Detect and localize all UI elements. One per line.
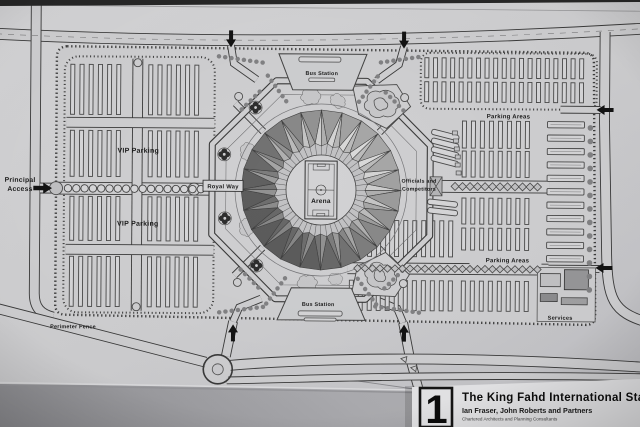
parking-bay <box>425 82 429 102</box>
parking-bay <box>476 82 480 102</box>
parking-bay <box>97 256 101 306</box>
parking-bay <box>511 58 515 78</box>
parking-bay <box>519 82 523 102</box>
avenue-tree <box>131 185 138 192</box>
parking-bay <box>193 257 197 307</box>
parking-bay <box>537 59 541 79</box>
parking-bay <box>519 58 523 78</box>
title-block: 1 The King Fahd International Stadium Ia… <box>405 379 640 427</box>
parking-bay <box>506 281 510 311</box>
parking-bay <box>489 228 493 250</box>
parking-bay <box>536 83 540 103</box>
parking-bay <box>97 196 101 240</box>
parking-bay <box>156 257 160 307</box>
parking-bay <box>459 58 463 78</box>
parking-bay <box>194 131 198 177</box>
parking-bay <box>494 58 498 78</box>
parking-bay <box>115 257 119 307</box>
parking-bay <box>89 64 93 114</box>
parking-bay <box>528 82 532 102</box>
parking-bay <box>433 82 437 102</box>
parking-bay <box>449 221 453 257</box>
parking-bay <box>480 121 484 148</box>
parking-bay <box>439 281 443 311</box>
parking-bay <box>107 65 111 115</box>
parking-bay <box>106 197 110 241</box>
avenue-tree <box>156 185 163 192</box>
parking-bay <box>525 228 529 250</box>
parking-bay <box>184 197 188 241</box>
parking-bay <box>194 197 198 241</box>
avenue-tree <box>172 185 179 192</box>
parking-bay <box>497 281 501 311</box>
avenue-tree <box>147 185 154 192</box>
bus-station-label-bottom: Bus Station <box>302 302 335 308</box>
parking-bay <box>157 197 161 241</box>
parking-bay <box>476 58 480 78</box>
parking-bay <box>524 281 528 311</box>
parking-bay <box>88 256 92 306</box>
avenue-tree <box>106 185 113 192</box>
parking-bay <box>498 151 502 177</box>
parking-bay <box>489 151 493 177</box>
parking-bay <box>462 121 466 148</box>
consultants-line: Chartered Architects and Planning Consul… <box>462 417 558 422</box>
avenue-tree <box>189 185 196 192</box>
parking-bay <box>442 58 446 78</box>
avenue-tree <box>180 185 187 192</box>
parking-bay <box>528 58 532 78</box>
parking-bay <box>440 221 444 257</box>
parking-bay <box>502 58 506 78</box>
parking-bay <box>480 198 484 224</box>
vip-parking-label-lower: VIP Parking <box>117 221 159 228</box>
parking-bay <box>525 121 529 148</box>
parking-bay <box>516 151 520 177</box>
road-surface <box>66 122 214 123</box>
parking-bay <box>471 121 475 148</box>
parking-bay <box>489 121 493 148</box>
photo-of-site-plan-board: Principal Access VIP Parking VIP Parking… <box>0 0 640 427</box>
parking-bay <box>470 281 474 311</box>
parking-bay <box>175 257 179 307</box>
service-building <box>561 298 587 305</box>
parking-bay <box>433 58 437 78</box>
officials-label-line2: Competitors <box>402 187 436 193</box>
project-title: The King Fahd International Stadium <box>462 392 640 404</box>
parking-bay <box>485 82 489 102</box>
fountain-icon <box>250 259 263 272</box>
fountain-icon <box>218 212 231 225</box>
parking-bay <box>107 131 111 177</box>
parking-bay <box>468 58 472 78</box>
parking-bay <box>554 83 558 103</box>
parking-bay <box>166 197 170 241</box>
site-plan-drawing: Principal Access VIP Parking VIP Parking… <box>0 0 640 427</box>
parking-bay <box>502 82 506 102</box>
parking-bay <box>148 197 152 241</box>
avenue-tree <box>122 185 129 192</box>
parking-bay <box>471 151 475 177</box>
service-building <box>564 270 588 290</box>
parking-bay <box>571 83 575 103</box>
parking-bay <box>461 281 465 311</box>
principal-access-label-line2: Access <box>7 186 32 193</box>
parking-bay <box>166 131 170 177</box>
parking-bay <box>507 198 511 224</box>
parking-bay <box>516 198 520 224</box>
vip-parking-label-upper: VIP Parking <box>117 148 159 155</box>
parking-bay <box>511 82 515 102</box>
parking-bay <box>545 83 549 103</box>
parking-bay <box>450 82 454 102</box>
fountain-icon <box>218 148 231 161</box>
stadium <box>234 103 407 276</box>
parking-bay <box>562 83 566 103</box>
avenue-tree <box>89 185 96 192</box>
parking-bay <box>176 65 180 115</box>
parking-bay <box>166 257 170 307</box>
parking-bay <box>459 82 463 102</box>
parking-bay <box>451 58 455 78</box>
parking-bay <box>395 221 399 257</box>
parking-bay <box>175 197 179 241</box>
parking-bay <box>106 257 110 307</box>
parking-bay <box>98 130 102 176</box>
avenue-tree <box>73 185 80 192</box>
avenue-tree <box>164 185 171 192</box>
parking-bay <box>185 131 189 177</box>
parking-bay <box>462 198 466 224</box>
parking-bay <box>412 281 416 311</box>
parking-bay <box>70 196 74 240</box>
parking-bay <box>562 59 566 79</box>
avenue-tree <box>64 185 71 192</box>
parking-bay <box>462 228 466 250</box>
parking-areas-label-upper: Parking Areas <box>487 114 531 120</box>
avenue-tree <box>81 185 88 192</box>
parking-bay <box>116 197 120 241</box>
parking-bay <box>480 228 484 250</box>
parking-bay <box>442 82 446 102</box>
avenue-tree <box>97 185 104 192</box>
parking-bay <box>430 281 434 311</box>
parking-bay <box>88 196 92 240</box>
parking-bay <box>184 257 188 307</box>
service-building <box>540 294 557 302</box>
parking-bay <box>79 196 83 240</box>
parking-bay <box>69 256 73 306</box>
service-building <box>540 274 560 287</box>
fountain-icon <box>249 101 262 114</box>
parking-bay <box>571 59 575 79</box>
avenue-tree <box>114 185 121 192</box>
parking-bay <box>88 130 92 176</box>
bus-station-label-top: Bus Station <box>305 71 338 77</box>
architects-line: Ian Fraser, John Roberts and Partners <box>462 406 592 415</box>
parking-bay <box>579 83 583 103</box>
parking-bay <box>493 82 497 102</box>
parking-bay <box>525 151 529 177</box>
sheet-number: 1 <box>425 388 447 427</box>
parking-bay <box>516 228 520 250</box>
parking-bay <box>448 281 452 311</box>
parking-bay <box>545 59 549 79</box>
parking-bay <box>149 65 153 115</box>
parking-bay <box>507 121 511 148</box>
parking-bay <box>468 82 472 102</box>
arena-label: Arena <box>311 198 331 205</box>
parking-bay <box>70 130 74 176</box>
parking-bay <box>554 59 558 79</box>
parking-bay <box>489 198 493 224</box>
parking-bay <box>147 257 151 307</box>
parking-bay <box>421 281 425 311</box>
parking-bay <box>80 64 84 114</box>
parking-bay <box>425 58 429 78</box>
parking-bay <box>498 198 502 224</box>
parking-bay <box>167 65 171 115</box>
parking-bay <box>525 198 529 224</box>
parking-bay <box>71 64 75 114</box>
parking-bay <box>507 228 511 250</box>
parking-bay <box>488 281 492 311</box>
services-label: Services <box>548 316 573 322</box>
road-surface <box>136 59 138 311</box>
parking-bay <box>516 121 520 148</box>
parking-bay <box>515 281 519 311</box>
parking-bay <box>176 131 180 177</box>
parking-bay <box>79 130 83 176</box>
parking-bay <box>580 59 584 79</box>
royal-way-label: Royal Way <box>207 184 239 190</box>
road-surface <box>66 249 214 250</box>
parking-bay <box>471 198 475 224</box>
parking-bay <box>158 65 162 115</box>
parking-bay <box>479 281 483 311</box>
parking-bay <box>480 151 484 177</box>
parking-bay <box>471 228 475 250</box>
parking-bay <box>185 65 189 115</box>
perimeter-fence-label: Perimeter Fence <box>50 324 96 330</box>
parking-bay <box>498 228 502 250</box>
officials-label-line1: Officials and <box>402 179 437 185</box>
parking-bay <box>498 121 502 148</box>
parking-bay <box>507 151 511 177</box>
parking-areas-label-lower: Parking Areas <box>486 258 530 264</box>
roundabout <box>203 355 232 384</box>
parking-bay <box>195 65 199 115</box>
principal-access-label-line1: Principal <box>5 177 36 184</box>
parking-bay <box>78 256 82 306</box>
parking-bay <box>117 65 121 115</box>
parking-bay <box>485 58 489 78</box>
avenue-tree <box>139 185 146 192</box>
parking-bay <box>462 151 466 177</box>
parking-bay <box>98 64 102 114</box>
